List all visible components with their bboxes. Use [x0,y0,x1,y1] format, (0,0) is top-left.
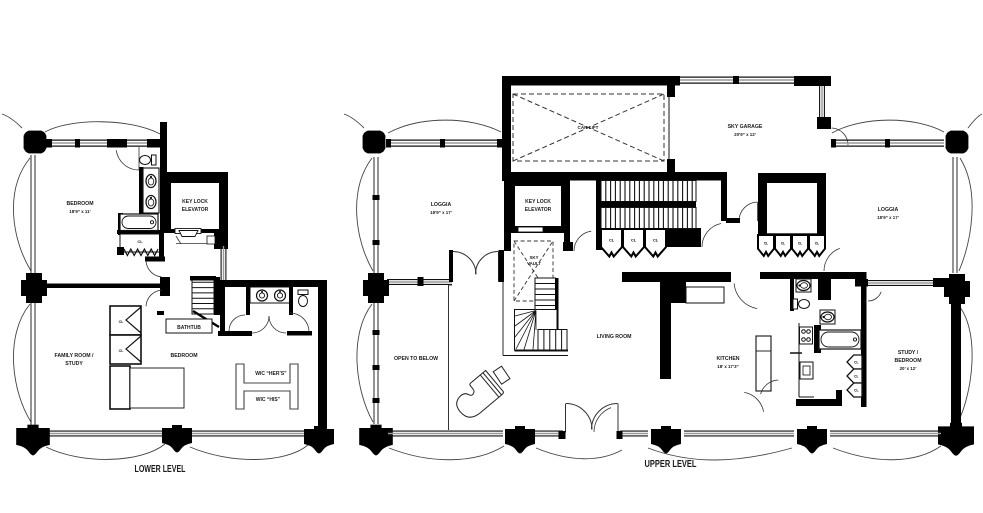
svg-text:CL: CL [815,242,819,246]
svg-text:18’ x 17’3”: 18’ x 17’3” [717,364,738,369]
svg-text:20’9” x 12’: 20’9” x 12’ [734,132,756,137]
svg-text:CL: CL [764,242,768,246]
svg-text:BEDROOM: BEDROOM [894,358,921,364]
svg-text:VAULT: VAULT [527,261,541,266]
svg-text:CL: CL [798,242,802,246]
svg-text:CL: CL [854,374,858,378]
svg-text:SKY GARAGE: SKY GARAGE [728,124,763,130]
svg-text:KEY LOCK: KEY LOCK [525,199,551,205]
svg-text:STUDY: STUDY [65,361,83,367]
svg-text:LOGGIA: LOGGIA [431,202,452,208]
svg-text:FAMILY ROOM /: FAMILY ROOM / [55,353,94,359]
svg-text:ELEVATOR: ELEVATOR [182,207,209,213]
svg-text:KITCHEN: KITCHEN [716,356,739,362]
svg-text:LOGGIA: LOGGIA [878,207,899,213]
svg-text:STUDY /: STUDY / [898,350,919,356]
svg-text:CAR LIFT: CAR LIFT [578,125,599,130]
svg-text:BATHTUB: BATHTUB [177,325,201,331]
svg-text:SKY: SKY [529,255,538,260]
svg-text:LOWER LEVEL: LOWER LEVEL [135,464,186,475]
svg-text:KEY LOCK: KEY LOCK [182,199,208,205]
svg-text:CL: CL [609,239,615,243]
svg-text:BEDROOM: BEDROOM [170,353,197,359]
svg-text:CL: CL [653,239,659,243]
svg-text:CL: CL [781,242,785,246]
svg-text:CL: CL [631,239,637,243]
svg-text:18’9” x 17’: 18’9” x 17’ [877,215,899,220]
svg-text:WIC “HIS”: WIC “HIS” [256,397,281,403]
svg-text:WIC “HER’S”: WIC “HER’S” [255,371,287,377]
svg-text:CL: CL [854,388,858,392]
svg-text:LIVING ROOM: LIVING ROOM [597,334,632,340]
svg-text:UPPER LEVEL: UPPER LEVEL [645,459,697,470]
svg-text:CL: CL [119,349,125,353]
svg-text:18’9” x 17’: 18’9” x 17’ [430,210,452,215]
svg-text:OPEN TO BELOW: OPEN TO BELOW [394,356,438,362]
svg-text:CL: CL [119,320,125,324]
svg-text:CL: CL [854,360,858,364]
svg-text:CL: CL [137,239,143,244]
svg-text:20’ x 12’: 20’ x 12’ [900,366,917,371]
svg-text:ELEVATOR: ELEVATOR [525,207,552,213]
svg-text:BEDROOM: BEDROOM [66,201,93,207]
svg-text:18’9” x 11’: 18’9” x 11’ [69,209,90,214]
